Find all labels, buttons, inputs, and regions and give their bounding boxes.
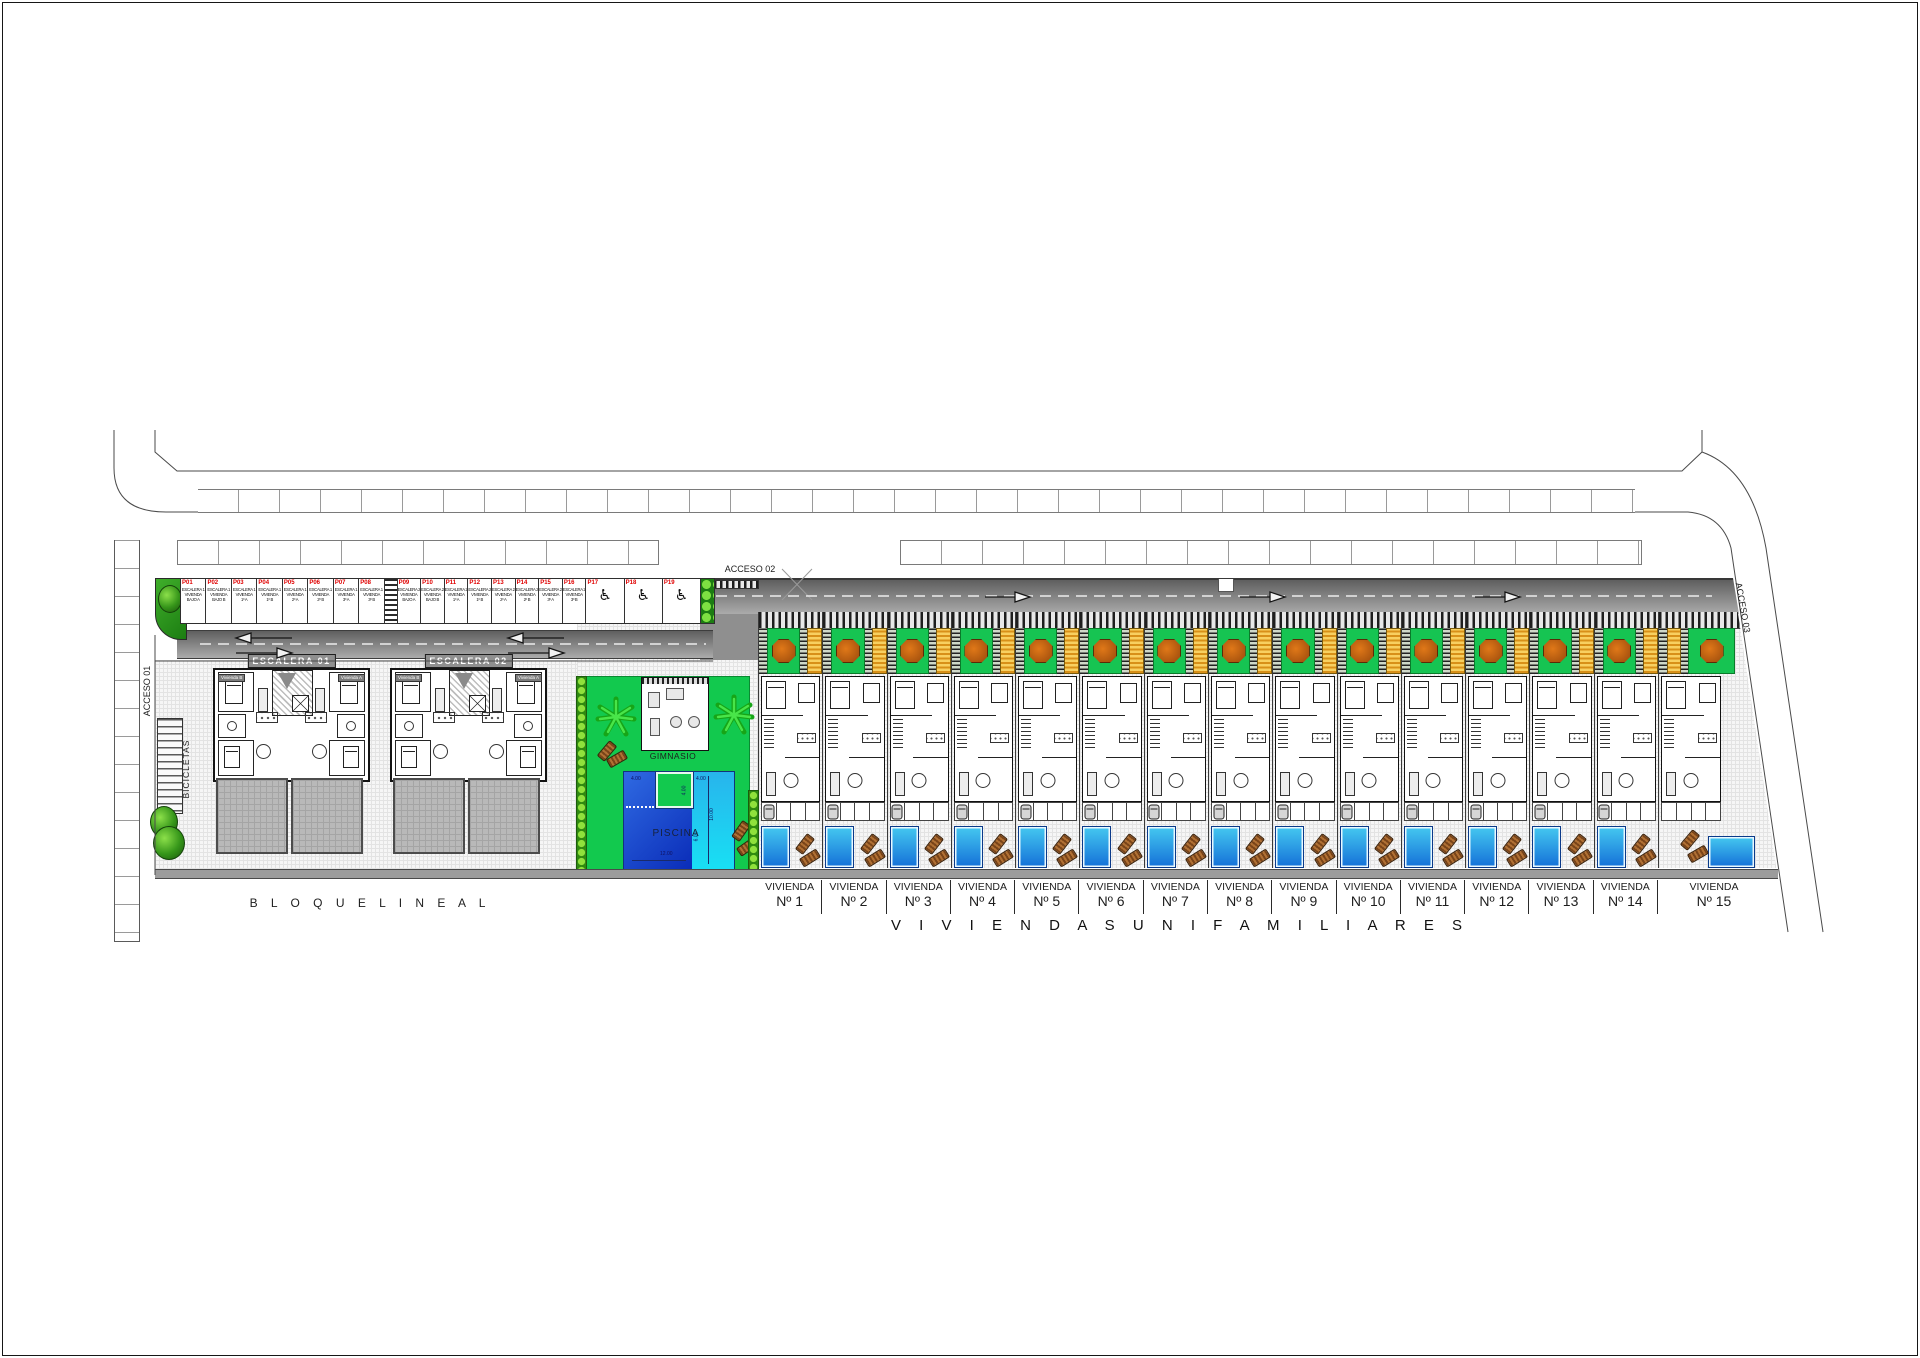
garden-lawn (896, 628, 929, 674)
parking-stall: P01 ESCALERA 1 VIVIENDA BAJO A (181, 579, 205, 623)
sofa-icon (1023, 772, 1033, 796)
sofa-icon (830, 772, 840, 796)
parking-stall: P14 ESCALERA 2 VIVIENDA 2º B (515, 579, 539, 623)
parking-stall: P16 ESCALERA 2 VIVIENDA 3º B (562, 579, 586, 623)
villa-label: VIVIENDA Nº 5 (1015, 880, 1079, 914)
bathroom-icon (1248, 683, 1265, 703)
tree-icon (1093, 639, 1117, 663)
car-icon (763, 804, 774, 819)
villa-pool (1532, 826, 1561, 868)
bed-icon (1216, 681, 1236, 709)
villa-house (1532, 676, 1591, 802)
stall-number: P05 (283, 580, 295, 587)
parking-stall: P12 ESCALERA 2 VIVIENDA 1º B (467, 579, 491, 623)
car-icon (956, 804, 967, 819)
bicicletas-label: BICICLETAS (181, 724, 195, 814)
sofa-icon (258, 688, 268, 712)
stall-number: P16 (563, 580, 575, 587)
villa-label: VIVIENDA Nº 11 (1401, 880, 1465, 914)
resident-parking-row: P01 ESCALERA 1 VIVIENDA BAJO A P02 ESCAL… (180, 578, 715, 624)
kitchen-icon (1633, 733, 1652, 743)
palm-tree-icon (712, 693, 756, 737)
villa-house (1404, 676, 1463, 802)
villa-pool (1708, 836, 1755, 868)
bike-rack (157, 718, 183, 814)
garden-hatch (1443, 628, 1450, 674)
stall-number: P03 (232, 580, 244, 587)
bed-icon (1409, 681, 1429, 709)
bed-icon (895, 681, 915, 709)
garden-lawn (1024, 628, 1057, 674)
garden-hatch (1659, 628, 1667, 674)
pergola (1514, 628, 1529, 674)
handicap-parking-stall: P18 ♿ (624, 579, 662, 623)
villa-house (761, 676, 820, 802)
table-icon (783, 773, 798, 788)
wheelchair-icon: ♿ (598, 587, 611, 604)
carport (1532, 802, 1591, 821)
bed-icon (1280, 681, 1300, 709)
villa-label: VIVIENDA Nº 6 (1079, 880, 1143, 914)
sofa-icon (435, 688, 445, 712)
garden-hatch (1057, 628, 1064, 674)
dimension-label: 4.00 (682, 786, 687, 796)
stairs-icon (828, 719, 838, 751)
driveway-hatch (1659, 612, 1791, 629)
carport (890, 802, 949, 821)
villa-label: VIVIENDA Nº 14 (1594, 880, 1658, 914)
villa-label: VIVIENDA Nº 1 (758, 880, 822, 914)
car-icon (1406, 804, 1417, 819)
driveway-hatch (1338, 612, 1401, 629)
bathroom-icon (1570, 683, 1587, 703)
villa-garden (1659, 628, 1735, 674)
pergola (1193, 628, 1208, 674)
car-icon (1213, 804, 1224, 819)
car-icon (1599, 804, 1610, 819)
stall-number: P07 (334, 580, 346, 587)
escalera-plate: ESCALERA 01 (247, 654, 335, 668)
bed-icon (1345, 681, 1365, 709)
villa-pool (1340, 826, 1369, 868)
villa-garden (1016, 628, 1079, 674)
tree-icon (1414, 639, 1438, 663)
driveway-hatch (1016, 612, 1079, 629)
stairs-icon (764, 719, 774, 751)
villa-pool (825, 826, 854, 868)
apartment-body: Vivienda B Vivienda A (390, 668, 547, 782)
garden-hatch (1315, 628, 1322, 674)
sofa-icon (1409, 772, 1419, 796)
tree-icon (772, 639, 796, 663)
car-icon (1278, 804, 1289, 819)
pool-lane-line (626, 806, 654, 808)
bed-icon (340, 680, 358, 704)
table-icon (912, 773, 927, 788)
driveway-hatch (1209, 612, 1272, 629)
toilet-icon (404, 721, 414, 731)
driveway-hatch (759, 612, 822, 629)
bathroom-icon (1377, 683, 1394, 703)
garden-lawn (1474, 628, 1507, 674)
handicap-parking-stall: P19 ♿ (662, 579, 700, 623)
garden-hatch (1681, 628, 1688, 674)
pool-label: PISCINA (636, 828, 716, 839)
pergola (1322, 628, 1337, 674)
bed-icon (225, 680, 243, 704)
tree-icon (1222, 639, 1246, 663)
garden-hatch (1402, 628, 1410, 674)
tree-icon (1157, 639, 1181, 663)
villa-cell (1401, 612, 1465, 868)
garden-hatch (1250, 628, 1257, 674)
stall-number: P17 (586, 580, 598, 587)
gym-equipment-icon (666, 688, 684, 700)
entry-hatch-bar (713, 580, 759, 589)
garden-lawn (1088, 628, 1121, 674)
bathroom-icon (927, 683, 944, 703)
garden-hatch (1595, 628, 1603, 674)
bed-icon (766, 681, 786, 709)
parking-stall: P08 ESCALERA 1 VIVIENDA 3º B (358, 579, 383, 623)
car-icon (1342, 804, 1353, 819)
bed-icon (520, 746, 536, 768)
villa-cell (1337, 612, 1401, 868)
hedge-strip-right (748, 790, 759, 872)
parking-stall: P10 ESCALERA 2 VIVIENDA BAJO B (420, 579, 444, 623)
car-icon (1085, 804, 1096, 819)
pergola (872, 628, 887, 674)
kitchen-icon (1440, 733, 1459, 743)
villa-house (1340, 676, 1399, 802)
stall-number: P06 (308, 580, 320, 587)
garden-lawn (960, 628, 993, 674)
villa-garden (1338, 628, 1401, 674)
table-icon (489, 744, 504, 759)
garden-lawn (1153, 628, 1186, 674)
pergola (1000, 628, 1015, 674)
stairs-icon (1535, 719, 1545, 751)
bed-icon (1023, 681, 1043, 709)
stairs-icon (957, 719, 967, 751)
pergola (1386, 628, 1401, 674)
villa-label: VIVIENDA Nº 8 (1208, 880, 1272, 914)
bed-icon (517, 680, 535, 704)
garden-hatch (1338, 628, 1346, 674)
sofa-icon (895, 772, 905, 796)
stall-number: P14 (516, 580, 528, 587)
villa-cell (951, 612, 1015, 868)
sofa-icon (959, 772, 969, 796)
apartment-unit (218, 672, 278, 776)
stall-number: P02 (206, 580, 218, 587)
carport (1468, 802, 1527, 821)
apartment-unit (482, 672, 542, 776)
stall-number: P19 (663, 580, 675, 587)
garden-lawn (831, 628, 864, 674)
villa-label-row: VIVIENDA Nº 1 VIVIENDA Nº 2 VIVIENDA Nº … (758, 880, 1658, 914)
terrace (393, 778, 465, 854)
kitchen-icon (926, 733, 945, 743)
villa-pool (1275, 826, 1304, 868)
tree-icon (153, 826, 185, 860)
car-icon (1535, 804, 1546, 819)
carport (1018, 802, 1077, 821)
villa-cell (1208, 612, 1272, 868)
road-gate-notch (1218, 579, 1234, 592)
stairs-icon (1214, 719, 1224, 751)
driveway-hatch (1145, 612, 1208, 629)
villa-house (825, 676, 884, 802)
unit-tag: Vivienda B (218, 674, 245, 682)
garden-hatch (759, 628, 767, 674)
villa-garden (888, 628, 951, 674)
garden-hatch (1186, 628, 1193, 674)
apartment-unit (305, 672, 365, 776)
apartment-block-escalera-01: ESCALERA 01 Vivienda B Vivienda A (213, 668, 370, 853)
stairs-icon (1343, 719, 1353, 751)
garden-hatch (823, 628, 831, 674)
driveway-hatch (1080, 612, 1143, 629)
tree-icon (900, 639, 924, 663)
garden-hatch (1273, 628, 1281, 674)
carport (1211, 802, 1270, 821)
tree-icon (1700, 639, 1724, 663)
bed-icon (1473, 681, 1493, 709)
sofa-icon (1537, 772, 1547, 796)
pergola (1257, 628, 1272, 674)
villa-label: VIVIENDA Nº 4 (951, 880, 1015, 914)
apartment-block-escalera-02: ESCALERA 02 Vivienda B Vivienda A (390, 668, 547, 853)
garden-hatch (1636, 628, 1643, 674)
garden-lawn (767, 628, 800, 674)
villa-cell-15 (1658, 612, 1791, 868)
villa-house (1597, 676, 1656, 802)
dimension-label: 4.00 (631, 777, 641, 782)
villa-garden (1145, 628, 1208, 674)
garden-hatch (1572, 628, 1579, 674)
sofa-icon (1345, 772, 1355, 796)
parking-stall: P07 ESCALERA 1 VIVIENDA 3º A (333, 579, 358, 623)
villa-pool (1597, 826, 1626, 868)
stairs-icon (1664, 719, 1674, 751)
bathroom-icon (863, 683, 880, 703)
table-icon (1619, 773, 1634, 788)
villa-garden (1466, 628, 1529, 674)
bed-icon (959, 681, 979, 709)
driveway-hatch (1466, 612, 1529, 629)
table-icon (1169, 773, 1184, 788)
unit-tag: Vivienda B (395, 674, 422, 682)
apartment-body: Vivienda B Vivienda A (213, 668, 370, 782)
street-parking-row-lower-left (177, 540, 659, 565)
sofa-icon (1473, 772, 1483, 796)
stairs-icon (1278, 719, 1288, 751)
parking-divider-hatch (384, 579, 398, 623)
gym-building (641, 677, 709, 751)
garden-hatch (993, 628, 1000, 674)
villa-cell (1015, 612, 1079, 868)
toilet-icon (227, 721, 237, 731)
bathroom-icon (1313, 683, 1330, 703)
sofa-icon (1152, 772, 1162, 796)
sofa-icon (1280, 772, 1290, 796)
villa-label: VIVIENDA Nº 12 (1465, 880, 1529, 914)
tree-icon (1607, 639, 1631, 663)
stairs-icon (1150, 719, 1160, 751)
tree-icon (1286, 639, 1310, 663)
villa-cell (1144, 612, 1208, 868)
villa-house (1082, 676, 1141, 802)
parking-stall: P15 ESCALERA 2 VIVIENDA 3º A (538, 579, 562, 623)
garden-hatch (1122, 628, 1129, 674)
garden-hatch (1530, 628, 1538, 674)
pergola (1643, 628, 1658, 674)
kitchen-icon (797, 733, 816, 743)
amenity-garden: 4.00 4.00 4.00 10.00 6.00 12.00 PISCINA (585, 676, 750, 877)
kitchen-icon (1569, 733, 1588, 743)
tree-icon (964, 639, 988, 663)
site-bottom-wall (155, 869, 1778, 879)
table-icon (847, 773, 862, 788)
table-icon (1684, 773, 1699, 788)
bathroom-icon (1120, 683, 1137, 703)
parking-group-escalera2: P09 ESCALERA 2 VIVIENDA BAJO A P10 ESCAL… (398, 579, 586, 623)
villa-garden (1080, 628, 1143, 674)
kitchen-icon (482, 712, 504, 723)
terrace (291, 778, 363, 854)
villa-pool (954, 826, 983, 868)
bathroom-icon (1634, 683, 1651, 703)
villa-label: VIVIENDA Nº 9 (1272, 880, 1336, 914)
parking-stall: P02 ESCALERA 1 VIVIENDA BAJO B (205, 579, 230, 623)
pergola (936, 628, 951, 674)
villa-cell (1272, 612, 1336, 868)
carport (1275, 802, 1334, 821)
garden-lawn (1410, 628, 1443, 674)
escalera-plate: ESCALERA 02 (424, 654, 512, 668)
stairs-icon (1600, 719, 1610, 751)
kitchen-icon (990, 733, 1009, 743)
villa-cell (1079, 612, 1143, 868)
carport (1597, 802, 1656, 821)
table-icon (1555, 773, 1570, 788)
carport (1661, 802, 1721, 821)
kitchen-icon (433, 712, 455, 723)
bed-icon (224, 746, 240, 768)
street-corner-left-outer (114, 430, 198, 512)
kitchen-icon (256, 712, 278, 723)
villa-pool (1468, 826, 1497, 868)
tree-icon (158, 585, 182, 613)
garden-lawn (1688, 628, 1735, 674)
terrace (216, 778, 288, 854)
garden-lawn (1346, 628, 1379, 674)
stairs-icon (1471, 719, 1481, 751)
bathroom-icon (1055, 683, 1072, 703)
dimension-line (632, 860, 686, 861)
tree-icon (1029, 639, 1053, 663)
garden-hatch (1145, 628, 1153, 674)
stall-number: P15 (539, 580, 551, 587)
bathroom-icon (1699, 683, 1716, 703)
villa-cell (758, 612, 822, 868)
sofa-icon (766, 772, 776, 796)
garden-lawn (1281, 628, 1314, 674)
garden-hatch (1080, 628, 1088, 674)
driveway-hatch (1530, 612, 1593, 629)
villa-house (1468, 676, 1527, 802)
villa-garden (759, 628, 822, 674)
stall-number: P11 (445, 580, 456, 587)
villa-pool (761, 826, 790, 868)
palm-tree-icon (594, 695, 638, 739)
bathroom-icon (1441, 683, 1458, 703)
wheelchair-icon: ♿ (637, 587, 650, 604)
stall-number: P13 (492, 580, 504, 587)
stall-number: P01 (181, 580, 193, 587)
table-icon (976, 773, 991, 788)
gym-equipment-icon (650, 718, 660, 736)
parking-stall: P11 ESCALERA 2 VIVIENDA 1º A (444, 579, 468, 623)
car-icon (892, 804, 903, 819)
sofa-icon (492, 688, 502, 712)
villa-garden (952, 628, 1015, 674)
kitchen-icon (1504, 733, 1523, 743)
villa-pool (1404, 826, 1433, 868)
car-icon (1020, 804, 1031, 819)
car-icon (1470, 804, 1481, 819)
parking-stall: P06 ESCALERA 1 VIVIENDA 2º B (307, 579, 332, 623)
carport (761, 802, 820, 821)
unit-tag: Vivienda A (515, 674, 542, 682)
pergola (1450, 628, 1465, 674)
villa-garden (823, 628, 886, 674)
table-icon (1362, 773, 1377, 788)
toilet-icon (523, 721, 533, 731)
kitchen-icon (862, 733, 881, 743)
stall-number: P09 (398, 580, 410, 587)
carport (954, 802, 1013, 821)
garden-lawn (1217, 628, 1250, 674)
carport (1082, 802, 1141, 821)
gym-equipment-icon (670, 716, 682, 728)
pergola (1667, 628, 1682, 674)
hedge-strip-left (576, 676, 587, 877)
garden-lawn (1538, 628, 1571, 674)
garden-hatch (800, 628, 807, 674)
parking-group-handicap: P17 ♿ P18 ♿ P19 ♿ (585, 579, 700, 623)
villa-cell (1594, 612, 1658, 868)
bed-icon (830, 681, 850, 709)
villa-house (954, 676, 1013, 802)
villa-pool (890, 826, 919, 868)
pergola (1064, 628, 1079, 674)
pergola (807, 628, 822, 674)
garden-hatch (1379, 628, 1386, 674)
villa-cell (1465, 612, 1529, 868)
table-icon (1297, 773, 1312, 788)
bloque-lineal-label: B L O Q U E L I N E A L (240, 896, 500, 910)
car-icon (828, 804, 839, 819)
parking-stall: P04 ESCALERA 1 VIVIENDA 1º B (256, 579, 281, 623)
dimension-label: 12.00 (660, 852, 673, 857)
tree-icon (1479, 639, 1503, 663)
stall-number: P10 (421, 580, 433, 587)
table-icon (256, 744, 271, 759)
acceso-02-label: ACCESO 02 (710, 564, 790, 574)
pergola (1129, 628, 1144, 674)
